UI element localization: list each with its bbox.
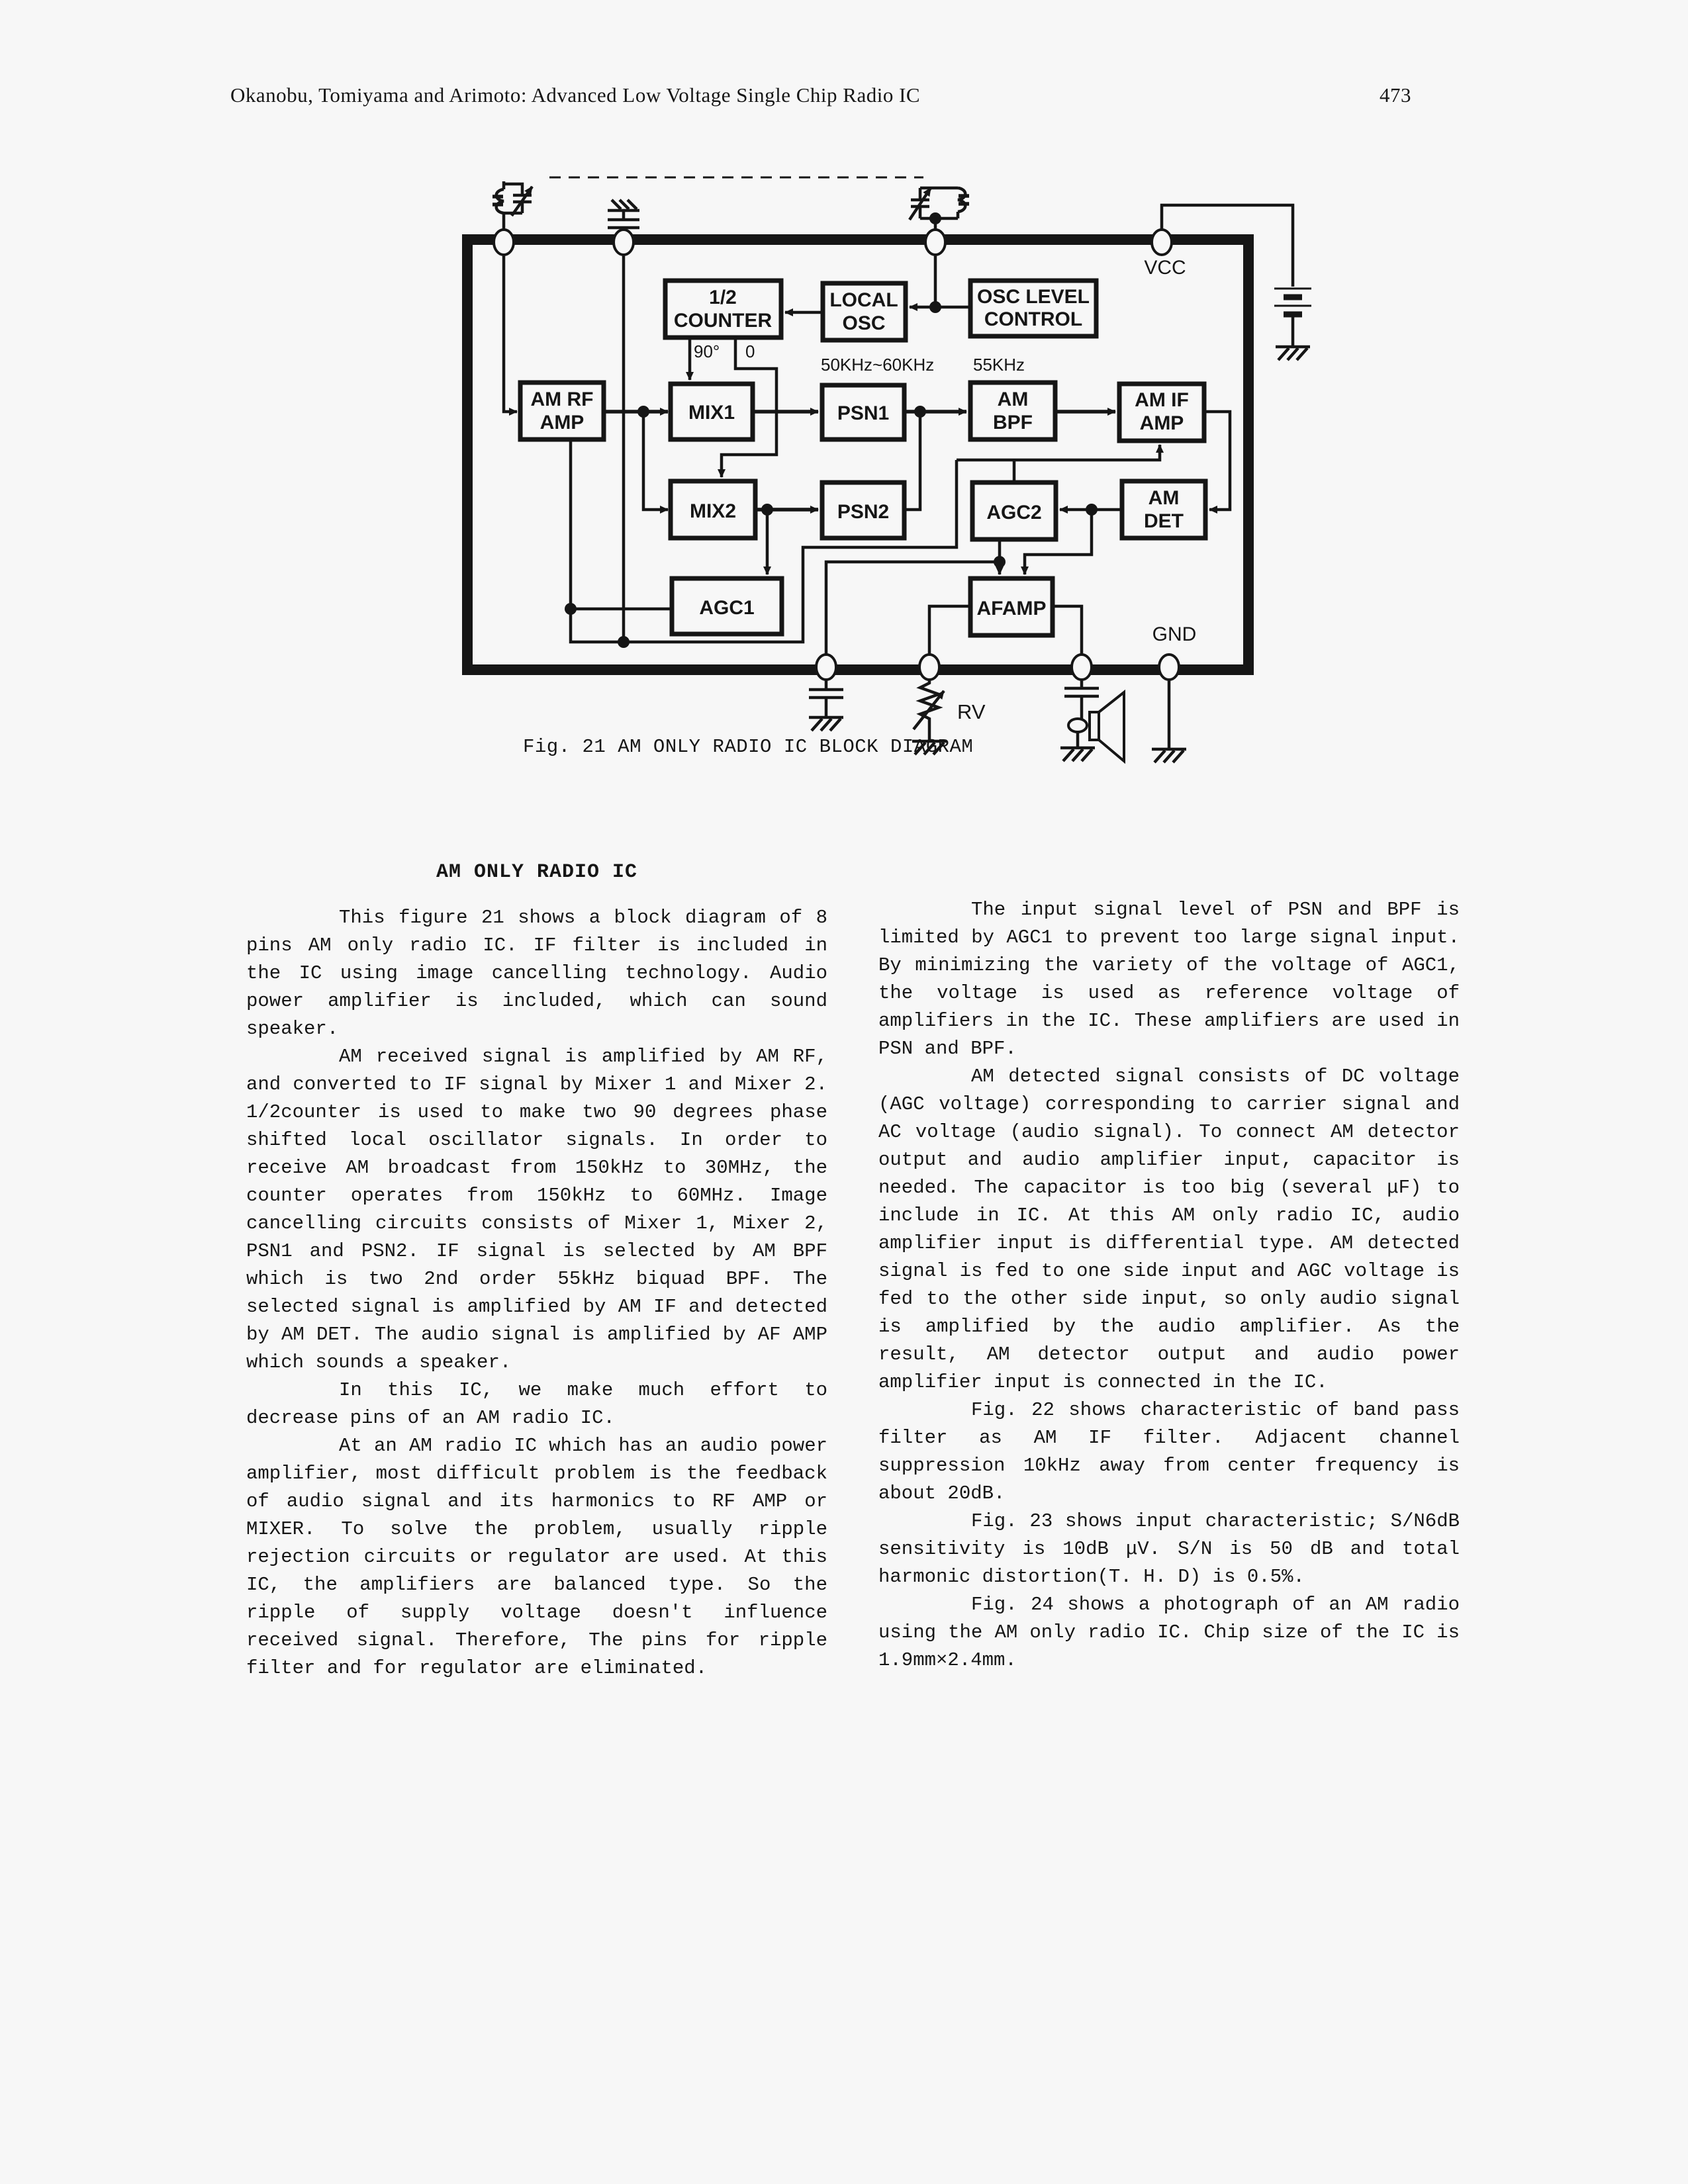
block-psn1: PSN1	[822, 385, 904, 439]
paragraph: Fig. 23 shows input characteristic; S/N6…	[878, 1508, 1460, 1591]
svg-text:DET: DET	[1144, 510, 1184, 532]
paragraph: In this IC, we make much effort to decre…	[246, 1377, 827, 1432]
block-half-counter: 1/2 COUNTER	[665, 281, 781, 338]
block-label: COUNTER	[674, 310, 773, 332]
block-am-rf-amp: AM RF AMP	[520, 383, 604, 439]
paragraph: Fig. 24 shows a photograph of an AM radi…	[878, 1591, 1460, 1674]
svg-text:AMP: AMP	[540, 412, 585, 433]
section-heading: AM ONLY RADIO IC	[246, 858, 827, 887]
block-mix2: MIX2	[671, 481, 755, 538]
svg-text:OSC LEVEL: OSC LEVEL	[977, 286, 1090, 308]
paragraph: This figure 21 shows a block diagram of …	[246, 904, 827, 1043]
agc-filter-capacitor	[809, 678, 843, 731]
svg-text:MIX1: MIX1	[688, 402, 735, 424]
pin-bypass	[614, 230, 633, 255]
svg-text:AM: AM	[998, 388, 1029, 410]
block-am-if-amp: AM IF AMP	[1119, 384, 1204, 441]
svg-text:MIX2: MIX2	[690, 500, 736, 522]
svg-text:CONTROL: CONTROL	[984, 308, 1082, 330]
svg-text:AM: AM	[1149, 487, 1180, 509]
speaker-cone	[1099, 692, 1124, 761]
bpf-frequency-label: 55KHz	[973, 355, 1025, 375]
paragraph: At an AM radio IC which has an audio pow…	[246, 1432, 827, 1682]
left-column: AM ONLY RADIO IC This figure 21 shows a …	[246, 858, 827, 1682]
gnd-label: GND	[1152, 623, 1197, 645]
gnd-return	[1152, 678, 1186, 762]
svg-text:PSN1: PSN1	[837, 402, 889, 424]
running-title: Okanobu, Tomiyama and Arimoto: Advanced …	[230, 83, 920, 107]
svg-text:AGC2: AGC2	[986, 502, 1041, 523]
block-psn2: PSN2	[822, 482, 904, 538]
speaker-coil	[1068, 719, 1087, 732]
pin-gnd	[1159, 655, 1179, 680]
block-am-det: AM DET	[1122, 481, 1205, 538]
vcc-label: VCC	[1144, 257, 1186, 279]
output-capacitor-speaker	[1060, 678, 1124, 761]
svg-text:LOCAL: LOCAL	[829, 289, 898, 311]
block-agc2: AGC2	[972, 482, 1056, 539]
paragraph: The input signal level of PSN and BPF is…	[878, 896, 1460, 1063]
antenna-tuned-circuit	[492, 181, 532, 238]
speaker-driver	[1090, 712, 1099, 740]
rv-label: RV	[957, 700, 986, 723]
block-diagram-svg: 1/2 COUNTER LOCAL OSC OSC LEVEL CONTROL …	[450, 159, 1331, 781]
pin-vcc	[1152, 230, 1172, 255]
psn-frequency-label: 50KHz~60KHz	[821, 355, 934, 375]
figure-caption: Fig. 21 AM ONLY RADIO IC BLOCK DIAGRAM	[523, 736, 973, 758]
counter-90-label: 90°	[694, 341, 720, 361]
svg-text:AM IF: AM IF	[1135, 389, 1189, 411]
page-header: Okanobu, Tomiyama and Arimoto: Advanced …	[230, 83, 1411, 107]
ground-symbol	[1152, 749, 1186, 762]
paragraph: AM received signal is amplified by AM RF…	[246, 1043, 827, 1377]
page-number: 473	[1380, 83, 1411, 107]
pin-osc	[925, 230, 945, 255]
svg-text:PSN2: PSN2	[837, 501, 889, 523]
svg-text:AGC1: AGC1	[699, 597, 754, 619]
right-column: The input signal level of PSN and BPF is…	[878, 858, 1460, 1674]
svg-text:AMP: AMP	[1140, 412, 1184, 434]
block-label: 1/2	[709, 287, 737, 308]
svg-text:OSC: OSC	[842, 312, 885, 334]
pin-volume	[919, 655, 939, 680]
pin-agc-filter	[816, 655, 836, 680]
block-osc-level-control: OSC LEVEL CONTROL	[970, 281, 1096, 336]
ground-symbol	[1060, 748, 1095, 761]
svg-text:AM RF: AM RF	[531, 388, 594, 410]
ground-symbol	[809, 717, 843, 731]
svg-text:BPF: BPF	[993, 412, 1033, 433]
block-diagram-figure: 1/2 COUNTER LOCAL OSC OSC LEVEL CONTROL …	[450, 159, 1331, 781]
ground-symbol	[1276, 347, 1310, 360]
battery-vcc	[1162, 205, 1311, 360]
counter-0-label: 0	[745, 341, 755, 361]
pin-rf-input	[494, 230, 514, 255]
block-agc1: AGC1	[672, 578, 782, 634]
svg-text:AFAMP: AFAMP	[977, 598, 1047, 619]
pin-audio-out	[1072, 655, 1092, 680]
block-local-osc: LOCAL OSC	[823, 283, 906, 340]
block-afamp: AFAMP	[970, 578, 1053, 635]
paragraph: Fig. 22 shows characteristic of band pas…	[878, 1396, 1460, 1508]
scanned-paper-page: Okanobu, Tomiyama and Arimoto: Advanced …	[0, 0, 1688, 2184]
block-am-bpf: AM BPF	[970, 383, 1055, 439]
block-mix1: MIX1	[671, 384, 753, 439]
paragraph: AM detected signal consists of DC voltag…	[878, 1063, 1460, 1396]
